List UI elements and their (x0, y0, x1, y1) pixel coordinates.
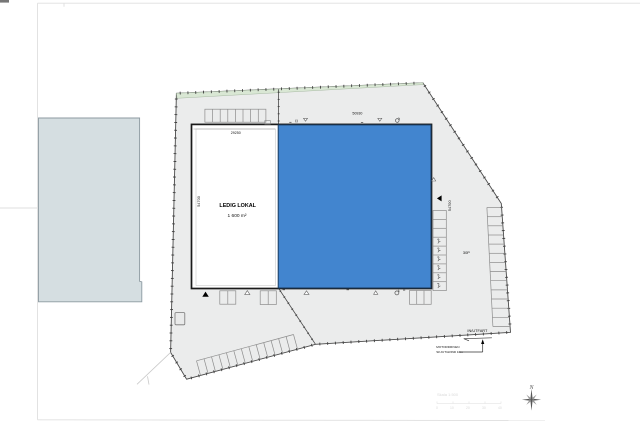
svg-text:54700: 54700 (447, 200, 452, 212)
svg-text:LEDIG LOKAL: LEDIG LOKAL (219, 203, 256, 209)
svg-text:30: 30 (482, 406, 486, 410)
svg-text:30P: 30P (463, 250, 470, 255)
svg-text:10: 10 (450, 406, 454, 410)
svg-text:1 600 m²: 1 600 m² (228, 213, 247, 219)
svg-text:0: 0 (436, 406, 438, 410)
svg-text:54700: 54700 (196, 195, 201, 207)
svg-text:IN/UTFART: IN/UTFART (467, 328, 488, 333)
svg-text:29250: 29250 (231, 131, 241, 135)
svg-text:40: 40 (498, 406, 502, 410)
svg-text:50930: 50930 (352, 112, 362, 116)
svg-text:MOTORDRIVEN: MOTORDRIVEN (436, 345, 459, 349)
svg-text:SKJUTGRIND 10m: SKJUTGRIND 10m (436, 350, 463, 354)
svg-text:20: 20 (466, 406, 470, 410)
svg-text:Skala 1:500: Skala 1:500 (437, 392, 459, 397)
